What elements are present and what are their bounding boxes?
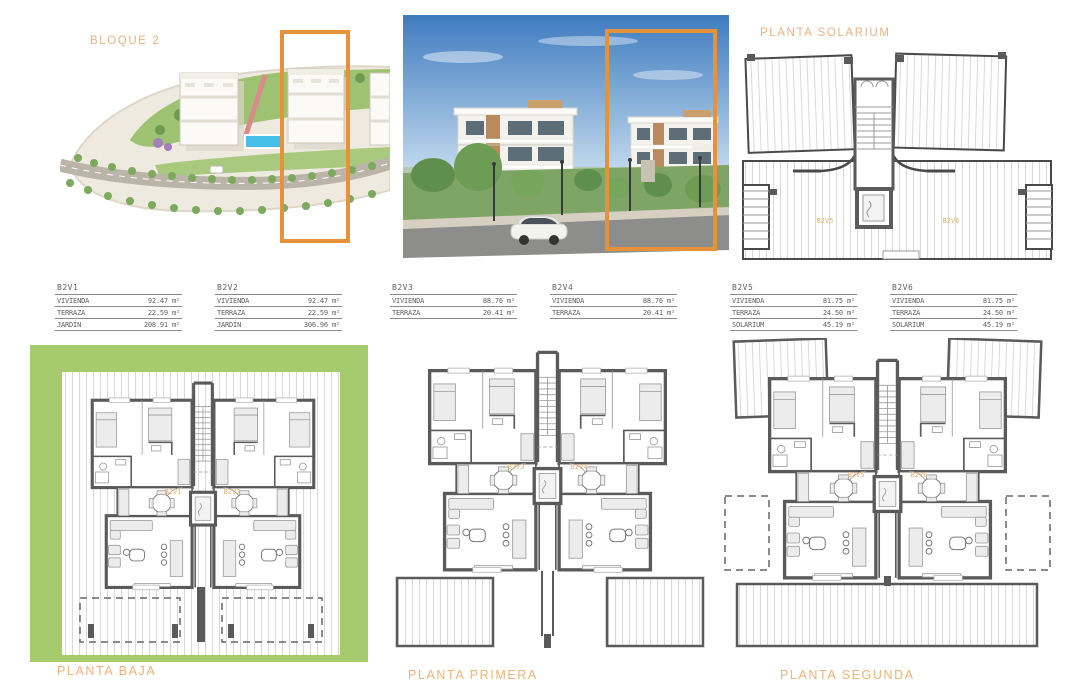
solarium-unit-right-label: B2V6 xyxy=(943,217,960,225)
planta-primera-plan: B2V3 B2V4 xyxy=(395,340,705,650)
spec-table-b2v3: B2V3VIVIENDA88.76 m²TERRAZA20.41 m² xyxy=(390,282,517,319)
spec-row-label: SOLARIUM xyxy=(892,321,924,329)
planta-baja-label: PLANTA BAJA xyxy=(57,664,156,678)
spec-row-value: 88.76 m² xyxy=(643,297,675,305)
spec-row-value: 22.59 m² xyxy=(308,309,340,317)
planta-baja-plan: B2V1 B2V2 xyxy=(62,372,340,655)
spec-row-label: VIVIENDA xyxy=(217,297,249,305)
unit-code: B2V1 xyxy=(55,282,182,295)
spec-row-label: VIVIENDA xyxy=(57,297,89,305)
spec-row-value: 22.59 m² xyxy=(148,309,180,317)
planta-segunda-plan: B2V5 B2V6 xyxy=(715,338,1060,652)
spec-row: VIVIENDA88.76 m² xyxy=(390,295,517,307)
planta-primera-label: PLANTA PRIMERA xyxy=(408,668,538,682)
unit-code: B2V4 xyxy=(550,282,677,295)
spec-row: TERRAZA20.41 m² xyxy=(390,307,517,319)
bloque-title: BLOQUE 2 xyxy=(90,35,160,47)
spec-row: JARDÍN208.91 m² xyxy=(55,319,182,331)
spec-row: VIVIENDA92.47 m² xyxy=(55,295,182,307)
spec-row-value: 208.91 m² xyxy=(144,321,180,329)
spec-row: SOLARIUM45.19 m² xyxy=(730,319,857,331)
spec-table-b2v2: B2V2VIVIENDA92.47 m²TERRAZA22.59 m²JARDÍ… xyxy=(215,282,342,331)
spec-row: TERRAZA24.50 m² xyxy=(890,307,1017,319)
spec-row-value: 45.19 m² xyxy=(823,321,855,329)
unit-code: B2V6 xyxy=(890,282,1017,295)
spec-row-label: VIVIENDA xyxy=(552,297,584,305)
planta-baja-garden: B2V1 B2V2 xyxy=(30,345,368,662)
spec-table-b2v5: B2V5VIVIENDA81.75 m²TERRAZA24.50 m²SOLAR… xyxy=(730,282,857,331)
spec-row-label: TERRAZA xyxy=(392,309,420,317)
spec-row-label: TERRAZA xyxy=(217,309,245,317)
spec-row-value: 306.96 m² xyxy=(304,321,340,329)
spec-row-label: SOLARIUM xyxy=(732,321,764,329)
aerial-pool xyxy=(245,135,281,148)
spec-row-label: VIVIENDA xyxy=(392,297,424,305)
aerial-render-panel: BLOQUE 2 xyxy=(60,15,390,265)
baja-unit-left-label: B2V1 xyxy=(165,488,182,496)
spec-tables-row: B2V1VIVIENDA92.47 m²TERRAZA22.59 m²JARDÍ… xyxy=(0,282,1070,342)
spec-table-b2v4: B2V4VIVIENDA88.76 m²TERRAZA20.41 m² xyxy=(550,282,677,319)
aerial-building-1 xyxy=(180,73,244,151)
aerial-building-3 xyxy=(370,73,390,145)
highlight-rectangle-street xyxy=(605,29,717,251)
spec-row-label: TERRAZA xyxy=(57,309,85,317)
solarium-unit-left-label: B2V5 xyxy=(817,217,834,225)
primera-unit-right-label: B2V4 xyxy=(571,463,588,471)
solarium-plan-panel: PLANTA SOLARIUM xyxy=(735,15,1060,265)
spec-row: TERRAZA24.50 m² xyxy=(730,307,857,319)
spec-row-value: 88.76 m² xyxy=(483,297,515,305)
unit-code: B2V3 xyxy=(390,282,517,295)
spec-row: TERRAZA22.59 m² xyxy=(55,307,182,319)
spec-row: VIVIENDA81.75 m² xyxy=(890,295,1017,307)
spec-row: VIVIENDA81.75 m² xyxy=(730,295,857,307)
planta-segunda-label: PLANTA SEGUNDA xyxy=(780,668,915,682)
spec-row-label: TERRAZA xyxy=(892,309,920,317)
unit-code: B2V5 xyxy=(730,282,857,295)
spec-row-label: TERRAZA xyxy=(552,309,580,317)
spec-row: VIVIENDA88.76 m² xyxy=(550,295,677,307)
spec-row: SOLARIUM45.19 m² xyxy=(890,319,1017,331)
spec-row-value: 81.75 m² xyxy=(823,297,855,305)
highlight-rectangle-aerial xyxy=(280,30,350,243)
spec-row-label: JARDÍN xyxy=(57,321,81,329)
baja-unit-right-label: B2V2 xyxy=(224,488,241,496)
spec-row-value: 24.50 m² xyxy=(823,309,855,317)
spec-row-value: 20.41 m² xyxy=(643,309,675,317)
spec-row-value: 92.47 m² xyxy=(308,297,340,305)
primera-unit-left-label: B2V3 xyxy=(508,463,525,471)
aerial-car xyxy=(210,166,223,173)
solarium-title: PLANTA SOLARIUM xyxy=(760,27,891,39)
spec-row-value: 24.50 m² xyxy=(983,309,1015,317)
segunda-unit-right-label: B2V6 xyxy=(911,471,928,479)
spec-row-value: 92.47 m² xyxy=(148,297,180,305)
segunda-unit-left-label: B2V5 xyxy=(848,471,865,479)
spec-table-b2v6: B2V6VIVIENDA81.75 m²TERRAZA24.50 m²SOLAR… xyxy=(890,282,1017,331)
spec-row-value: 45.19 m² xyxy=(983,321,1015,329)
spec-row: JARDÍN306.96 m² xyxy=(215,319,342,331)
spec-row-label: TERRAZA xyxy=(732,309,760,317)
spec-row-value: 20.41 m² xyxy=(483,309,515,317)
spec-row: TERRAZA22.59 m² xyxy=(215,307,342,319)
spec-row-label: JARDÍN xyxy=(217,321,241,329)
unit-code: B2V2 xyxy=(215,282,342,295)
spec-row-label: VIVIENDA xyxy=(732,297,764,305)
spec-table-b2v1: B2V1VIVIENDA92.47 m²TERRAZA22.59 m²JARDÍ… xyxy=(55,282,182,331)
spec-row-value: 81.75 m² xyxy=(983,297,1015,305)
spec-row-label: VIVIENDA xyxy=(892,297,924,305)
spec-row: TERRAZA20.41 m² xyxy=(550,307,677,319)
street-render-panel xyxy=(403,15,729,258)
spec-row: VIVIENDA92.47 m² xyxy=(215,295,342,307)
solarium-plan-drawing: B2V5 B2V6 xyxy=(735,43,1060,265)
